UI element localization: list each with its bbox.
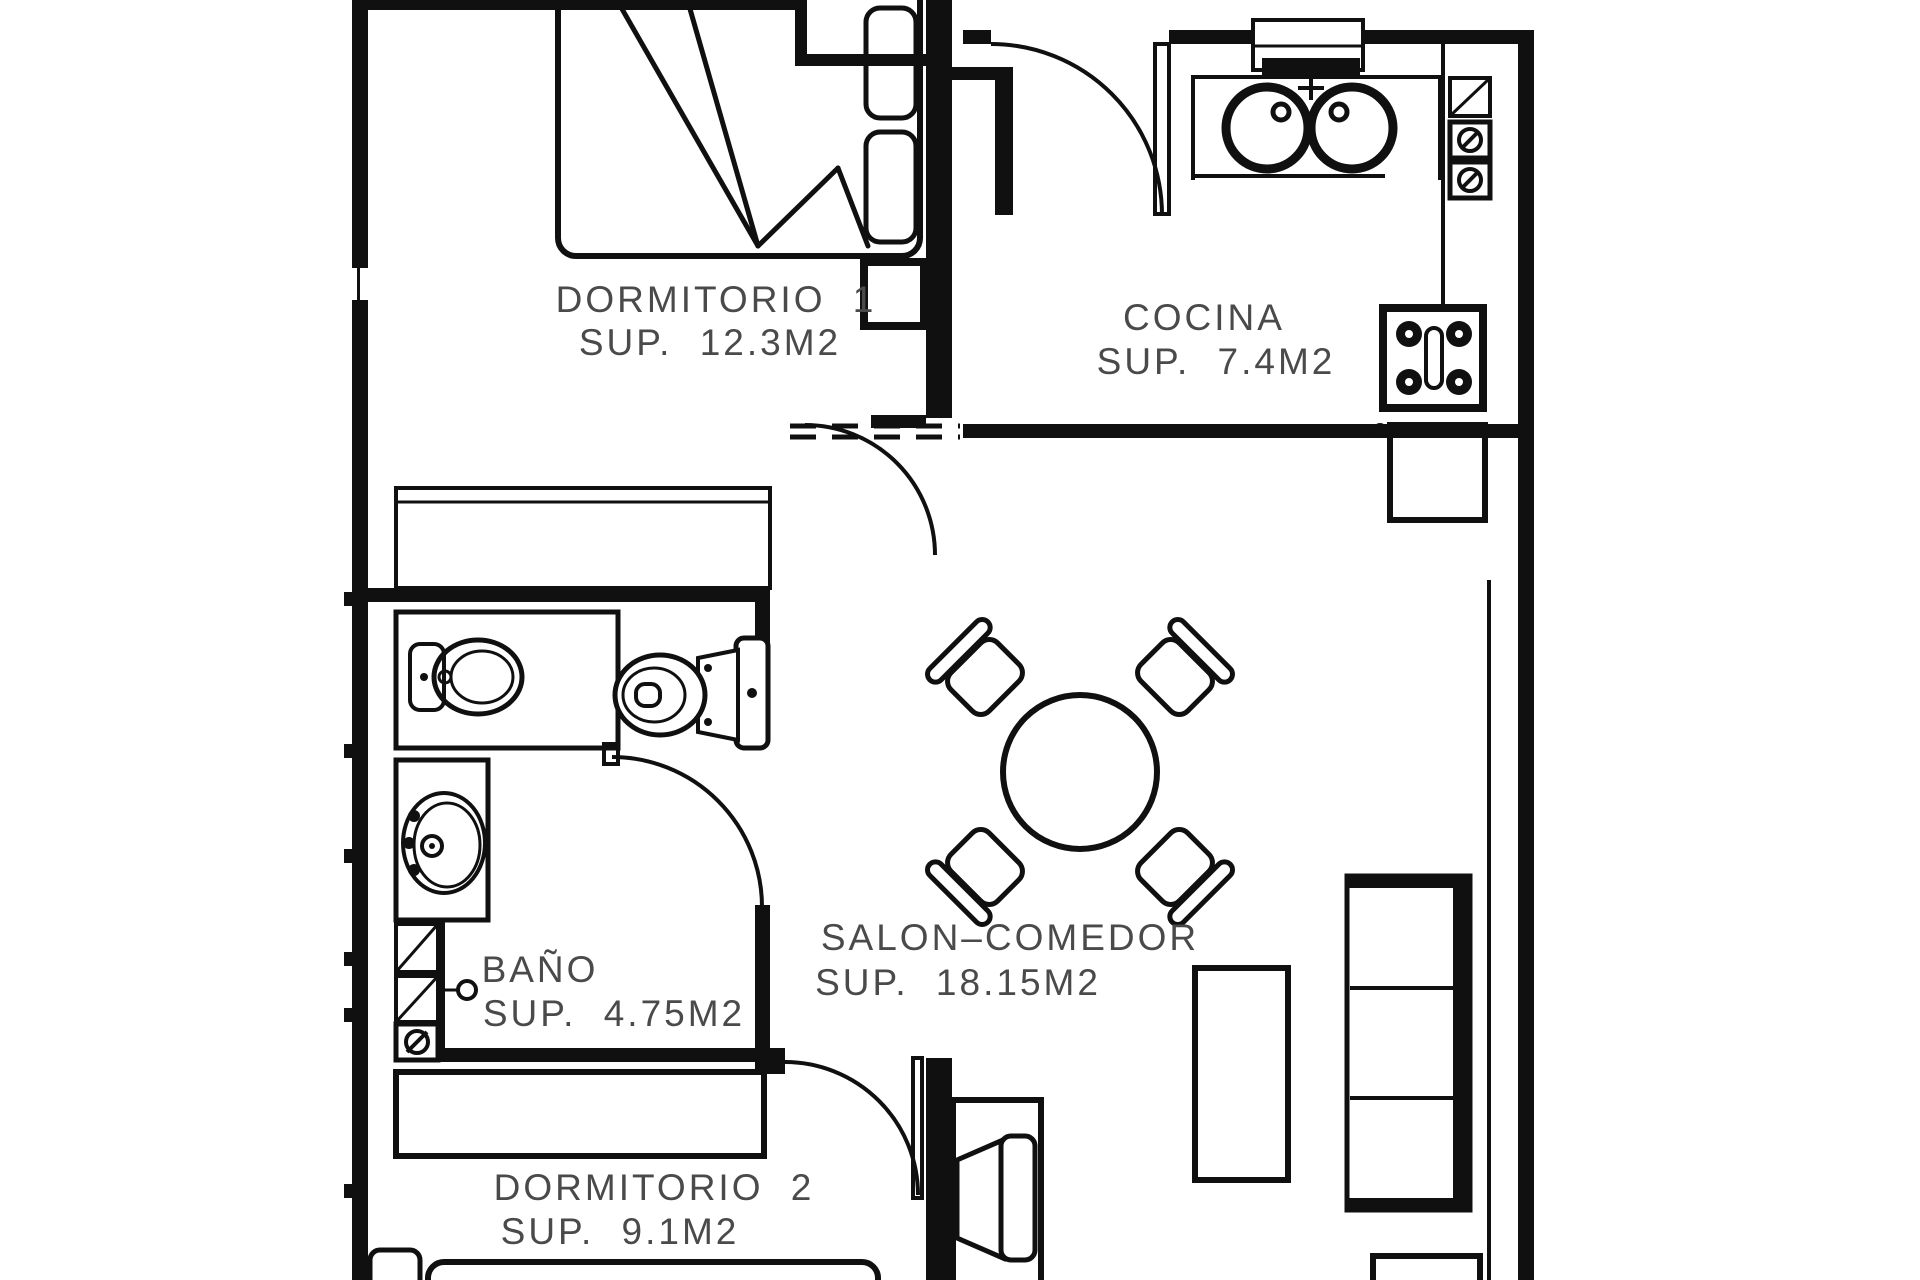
burner-center-dot [1455,330,1463,338]
wall-tick [344,592,352,606]
washbasin-drain-dot [429,843,435,849]
burner-center-dot [1405,378,1413,386]
tv-screen-icon [1001,1136,1035,1260]
sofa-back [1453,876,1470,1210]
room-area-cocina: SUP. 7.4M2 [1097,341,1336,382]
wall-tick [344,849,352,863]
facade-line [1487,580,1491,1280]
wall-segment [352,300,368,1280]
sofa-armrest [1347,1198,1470,1210]
washbasin-tap-dot [403,837,415,849]
tv-icon [957,1140,1003,1258]
door-leaf [1155,44,1169,214]
washbasin-tap-dot [408,810,420,822]
washbasin-tap-dot [408,864,420,876]
room-area-bano: SUP. 4.75M2 [483,993,745,1034]
wall-segment [963,30,991,44]
room-name-bano: BAÑO [482,949,599,990]
room-area-salon-comedor: SUP. 18.15M2 [815,962,1101,1003]
wall-segment [926,0,952,418]
toilet-bolt-dot [704,664,712,672]
wall-tick [344,1184,352,1198]
room-name-dormitorio-2: DORMITORIO 2 [494,1167,815,1208]
wall-segment [352,0,807,10]
wall-segment [440,1048,770,1062]
wall-tick [344,744,352,758]
bidet-tap-dot [420,673,428,681]
wall-segment [352,588,770,602]
toilet-bolt-dot [704,718,712,726]
sofa-icon [1347,876,1470,1210]
room-area-dormitorio-1: SUP. 12.3M2 [579,322,841,363]
toilet-tank-dot [747,688,757,698]
wall-tick [344,952,352,966]
wall-segment [995,67,1013,215]
wall-tick [344,1008,352,1022]
burner-center-dot [1405,330,1413,338]
dining-table-icon [1003,695,1157,849]
cabinet-knob-icon [1373,423,1387,437]
wall-segment [1518,30,1534,1280]
sofa-armrest [1347,876,1470,888]
burner-center-dot [1455,378,1463,386]
hob-center-icon [1426,328,1442,388]
wall-segment [352,0,368,268]
room-name-cocina: COCINA [1123,297,1285,338]
wall-segment [755,905,770,1062]
room-name-salon-comedor: SALON–COMEDOR [821,917,1199,958]
wall-window-line [357,268,360,300]
floor-plan: DORMITORIO 1 SUP. 12.3M2 COCINA SUP. 7.4… [0,0,1920,1280]
room-area-dormitorio-2: SUP. 9.1M2 [501,1211,740,1252]
wall-segment [795,54,928,66]
wall-segment [926,1058,952,1280]
room-name-dormitorio-1: DORMITORIO 1 [556,279,877,320]
